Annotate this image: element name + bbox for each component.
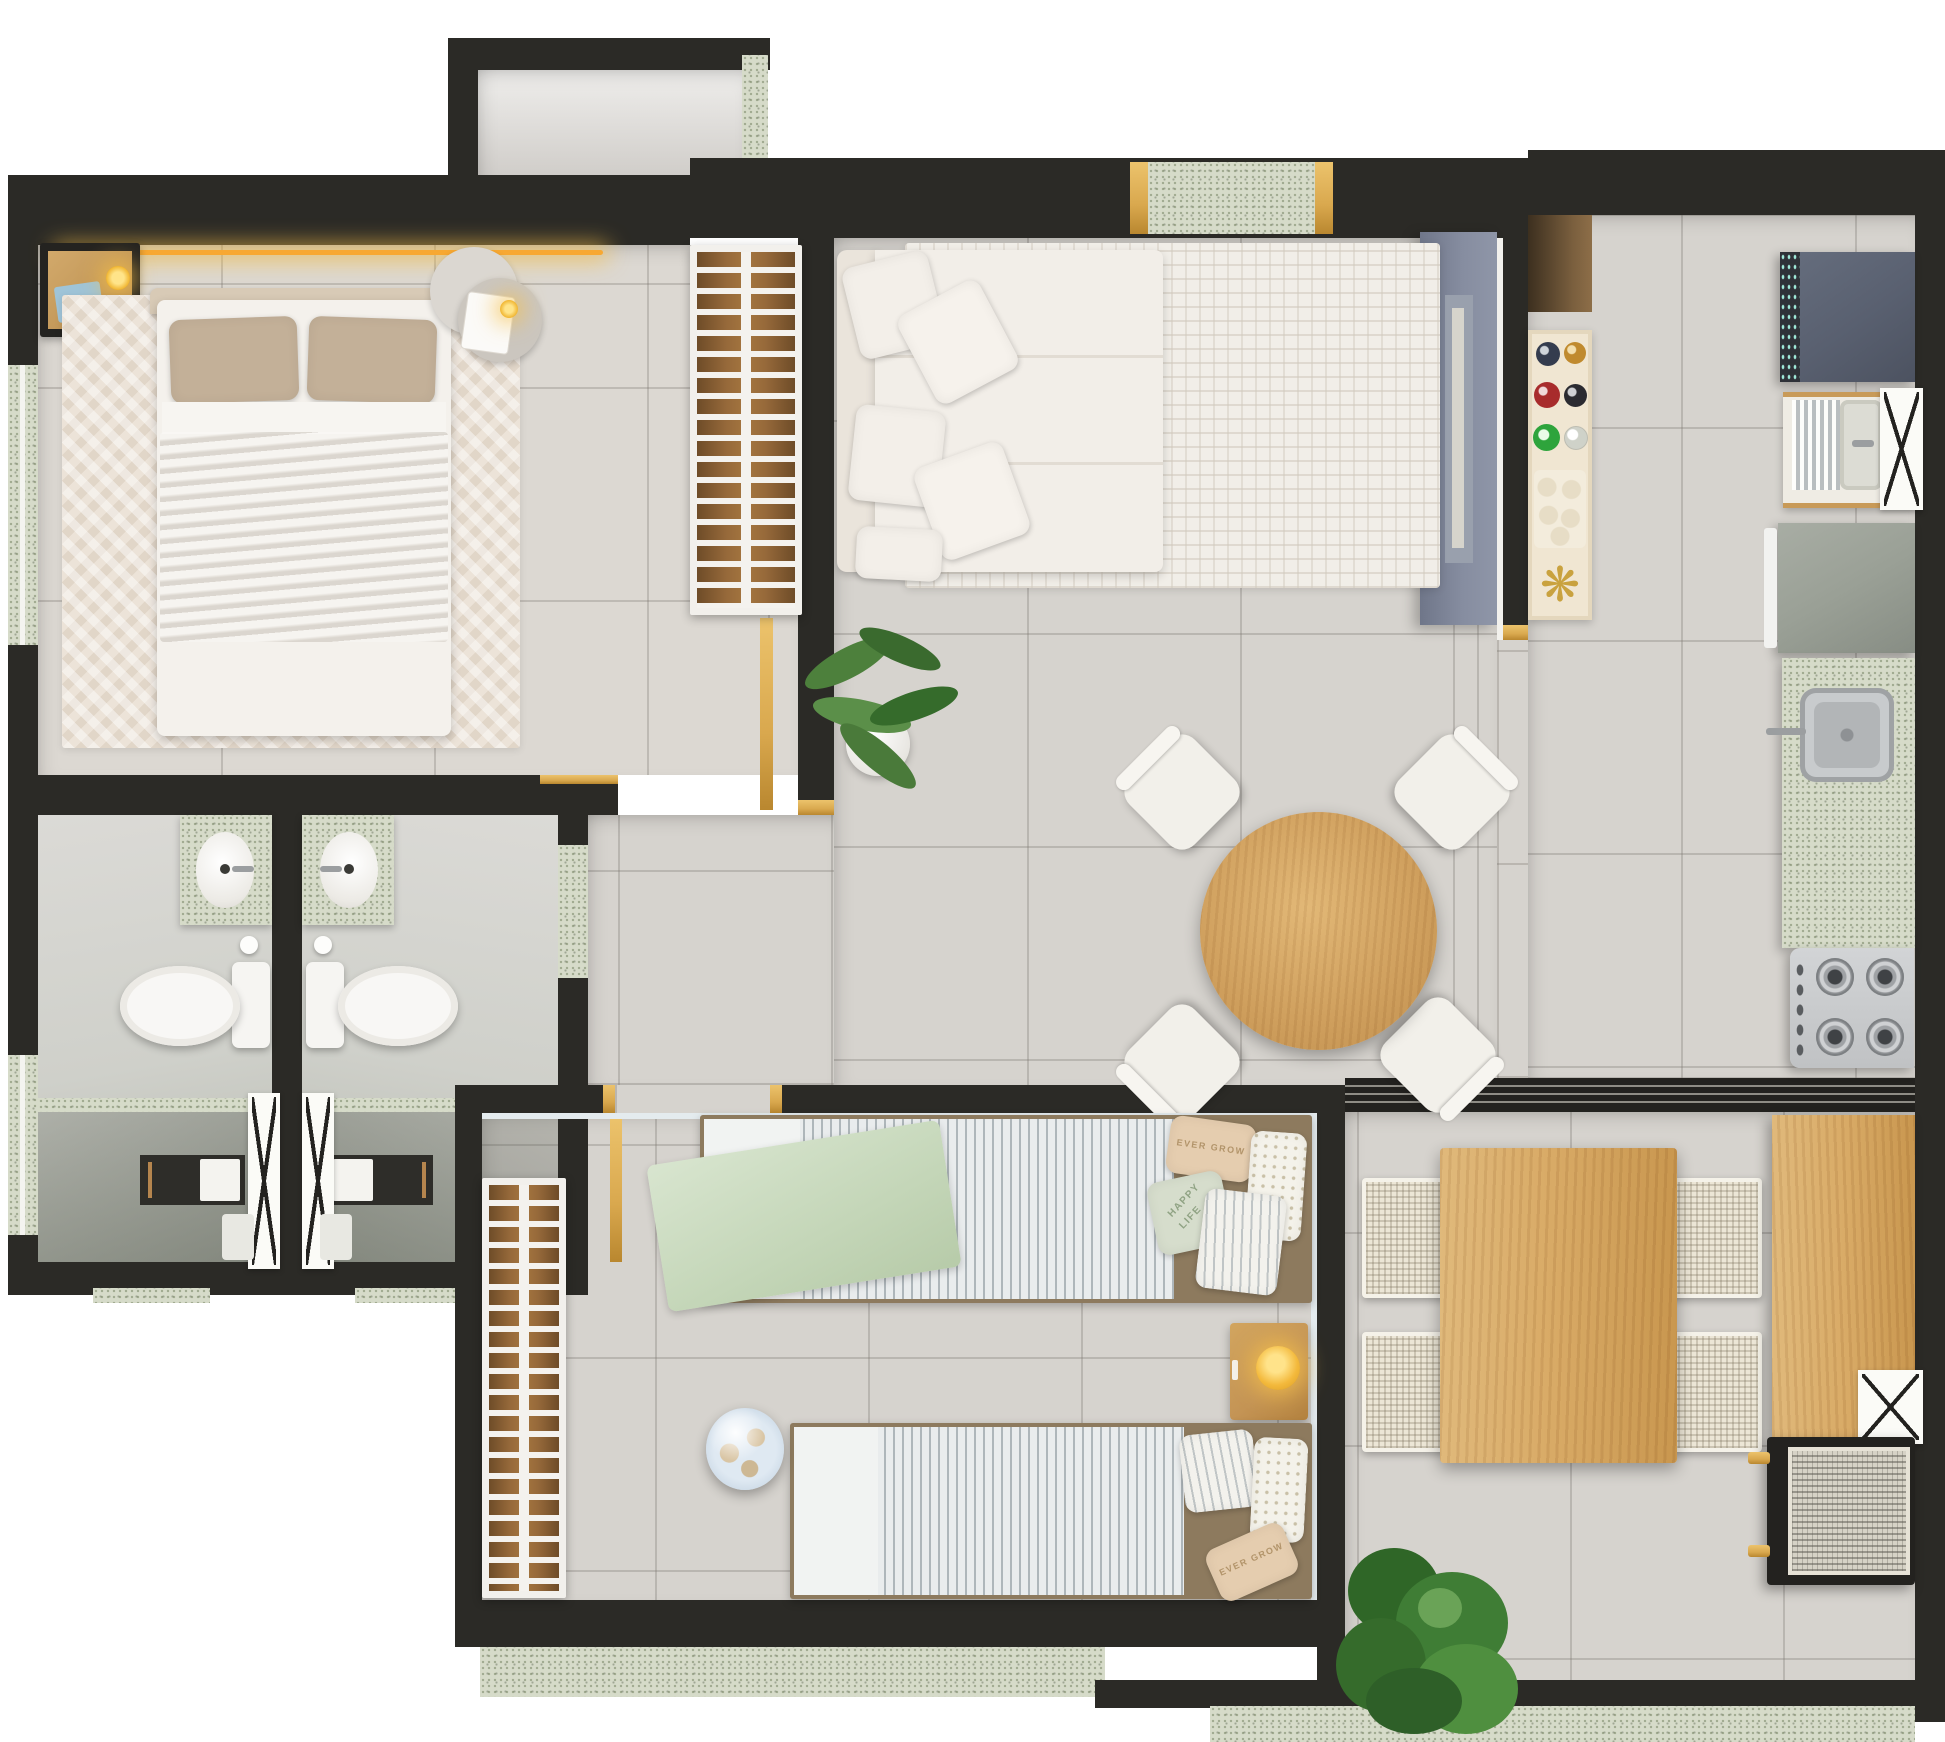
kids-door-jamb-left xyxy=(603,1085,615,1113)
bottle-red xyxy=(1534,382,1560,408)
bathroom-window-glass xyxy=(20,1055,25,1235)
kids-left-wall xyxy=(455,1085,482,1645)
toilet-left-bowl xyxy=(120,966,240,1046)
balcony-chair-ne xyxy=(1668,1178,1762,1298)
kids-wardrobe-rail xyxy=(519,1185,529,1591)
kids-door-leaf xyxy=(610,1117,622,1262)
toilet-paper-right xyxy=(314,936,332,954)
kids-door-jamb-right xyxy=(770,1085,782,1113)
decor-starburst-icon: ❋ xyxy=(1532,558,1588,614)
sink-left-drain xyxy=(220,864,230,874)
pillow-text-evergrow-2: EVER GROW xyxy=(1218,1540,1286,1577)
hall-top-wall xyxy=(448,38,770,70)
grill-knob-top xyxy=(1748,1452,1770,1464)
bedroom-living-divider-wall xyxy=(798,238,834,815)
burner-2 xyxy=(1866,958,1904,996)
bottle-black xyxy=(1564,384,1587,407)
bed-sheet-bottom xyxy=(162,642,446,736)
wardrobe-rail xyxy=(741,252,751,608)
bed-sheet-fold xyxy=(162,402,446,434)
sink-right-drain xyxy=(344,864,354,874)
bar-niche xyxy=(1528,215,1592,312)
hallway-floor xyxy=(588,815,834,1085)
burner-3 xyxy=(1816,1018,1854,1056)
laundry-x-stand xyxy=(1880,388,1923,510)
master-wardrobe xyxy=(690,245,802,615)
divider-wall-cap xyxy=(798,800,834,815)
bath-mat-right xyxy=(320,1214,352,1260)
plant-clump-5 xyxy=(1366,1668,1462,1734)
refrigerator xyxy=(1778,523,1915,653)
kitchen-top-wall xyxy=(1528,150,1945,215)
bath-mat-left xyxy=(222,1214,254,1260)
balcony-granite-band xyxy=(1210,1706,1915,1742)
refrigerator-door-edge xyxy=(1764,528,1777,648)
bedroom-door-leaf xyxy=(760,618,773,810)
bedroom-top-wall xyxy=(8,175,690,245)
bedroom-window-glass xyxy=(20,365,25,645)
bedroom-south-trim xyxy=(540,775,618,784)
stove-knobs xyxy=(1794,958,1806,1058)
plant-highlight xyxy=(1418,1588,1462,1628)
laundry-faucet xyxy=(1852,440,1874,447)
balcony-plant xyxy=(1330,1540,1530,1740)
kitchen-faucet xyxy=(1766,728,1806,735)
balcony-x-stool xyxy=(1858,1370,1923,1444)
grill-knob-bottom xyxy=(1748,1545,1770,1557)
bathroom-door-threshold xyxy=(558,845,588,978)
toilet-right-bowl xyxy=(338,966,458,1046)
kids-window-sill xyxy=(480,1647,1105,1697)
bed-duvet xyxy=(160,432,448,642)
window-jamb-right xyxy=(1315,162,1333,234)
balcony-chair-se xyxy=(1668,1332,1762,1452)
sofa-pillow-5 xyxy=(855,526,944,582)
sink-right-faucet xyxy=(320,866,342,872)
washing-machine xyxy=(1780,252,1915,382)
bathroom-right-wall-upper xyxy=(558,815,588,845)
kids-pillow-striped-top xyxy=(1194,1187,1288,1296)
kids-south-wall xyxy=(455,1600,1340,1647)
shower-left-threshold xyxy=(38,1098,272,1112)
burner-4 xyxy=(1866,1018,1904,1056)
globe xyxy=(706,1408,784,1490)
kids-wardrobe xyxy=(482,1178,566,1598)
bottle-navy xyxy=(1536,342,1560,366)
floor-plan: ❋ xyxy=(0,0,1945,1742)
bathroom-sill-left xyxy=(93,1288,210,1303)
burner-1 xyxy=(1816,958,1854,996)
grill-grate xyxy=(1788,1447,1910,1575)
kids-pillow-striped-bottom xyxy=(1178,1428,1260,1513)
balcony-table xyxy=(1440,1148,1677,1463)
hall-left-wall xyxy=(448,38,478,178)
sink-left-faucet xyxy=(232,866,254,872)
kitchen-divider-cap xyxy=(1503,625,1528,640)
kids-lamp xyxy=(1256,1346,1300,1390)
pillow-text-evergrow: EVER GROW xyxy=(1176,1137,1246,1157)
bathroom-sill-right xyxy=(355,1288,470,1303)
laundry-washboard xyxy=(1792,400,1840,490)
kids-bed-bottom-fold xyxy=(794,1427,878,1595)
bedroom-south-wall xyxy=(8,775,618,815)
towel-rod-left xyxy=(148,1162,152,1198)
living-top-window xyxy=(1148,162,1315,234)
round-dining-table xyxy=(1200,812,1437,1050)
bottle-clear xyxy=(1564,426,1588,450)
towel-right xyxy=(333,1159,373,1201)
entry-door-threshold xyxy=(742,55,768,158)
toilet-paper-left xyxy=(240,936,258,954)
kids-nightstand-handle xyxy=(1232,1360,1238,1380)
pendant-lamp-left xyxy=(106,266,130,290)
living-kitchen-divider-wall xyxy=(1503,238,1528,640)
kitchen-pass-floor xyxy=(1497,640,1528,1078)
kids-top-wall-right xyxy=(782,1085,1340,1113)
towel-left xyxy=(200,1159,240,1201)
right-outer-wall xyxy=(1915,150,1945,1722)
kids-top-wall-left xyxy=(482,1085,603,1113)
washer-control-panel xyxy=(1780,252,1800,382)
bed-pillow-left xyxy=(169,316,300,404)
bottle-green xyxy=(1533,424,1560,451)
bar-glasses xyxy=(1534,470,1586,548)
living-top-wall xyxy=(690,158,1528,238)
tv-screen xyxy=(1452,308,1464,548)
kids-door-floor xyxy=(615,1085,770,1115)
side-table-lamp xyxy=(500,300,518,318)
bottle-gold xyxy=(1564,342,1586,364)
kitchen-sink-basin xyxy=(1814,702,1880,768)
bed-pillow-right xyxy=(307,316,438,404)
window-jamb-left xyxy=(1130,162,1148,234)
towel-rod-right xyxy=(422,1162,426,1198)
